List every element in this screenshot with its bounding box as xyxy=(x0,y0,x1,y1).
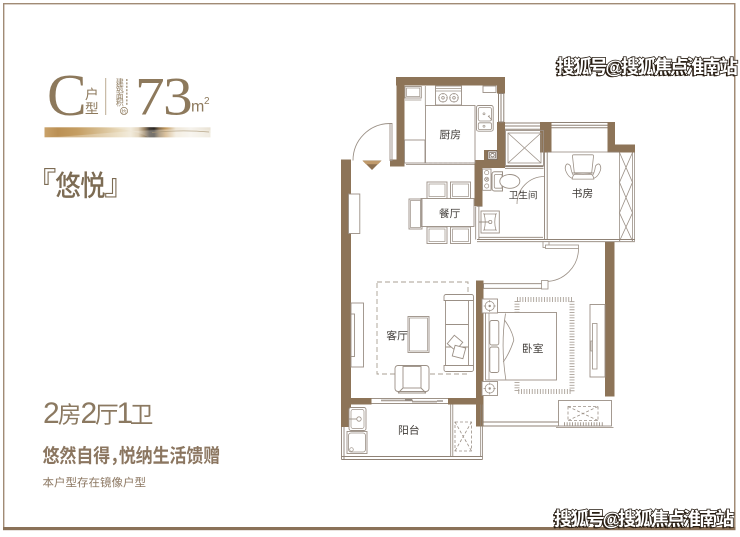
svg-text:m: m xyxy=(191,99,204,116)
svg-text:1: 1 xyxy=(117,397,134,430)
svg-text:2: 2 xyxy=(43,397,60,430)
svg-text:2: 2 xyxy=(81,397,98,430)
svg-text:2: 2 xyxy=(204,96,210,107)
svg-text:73: 73 xyxy=(135,68,191,127)
svg-text:C: C xyxy=(47,62,87,128)
